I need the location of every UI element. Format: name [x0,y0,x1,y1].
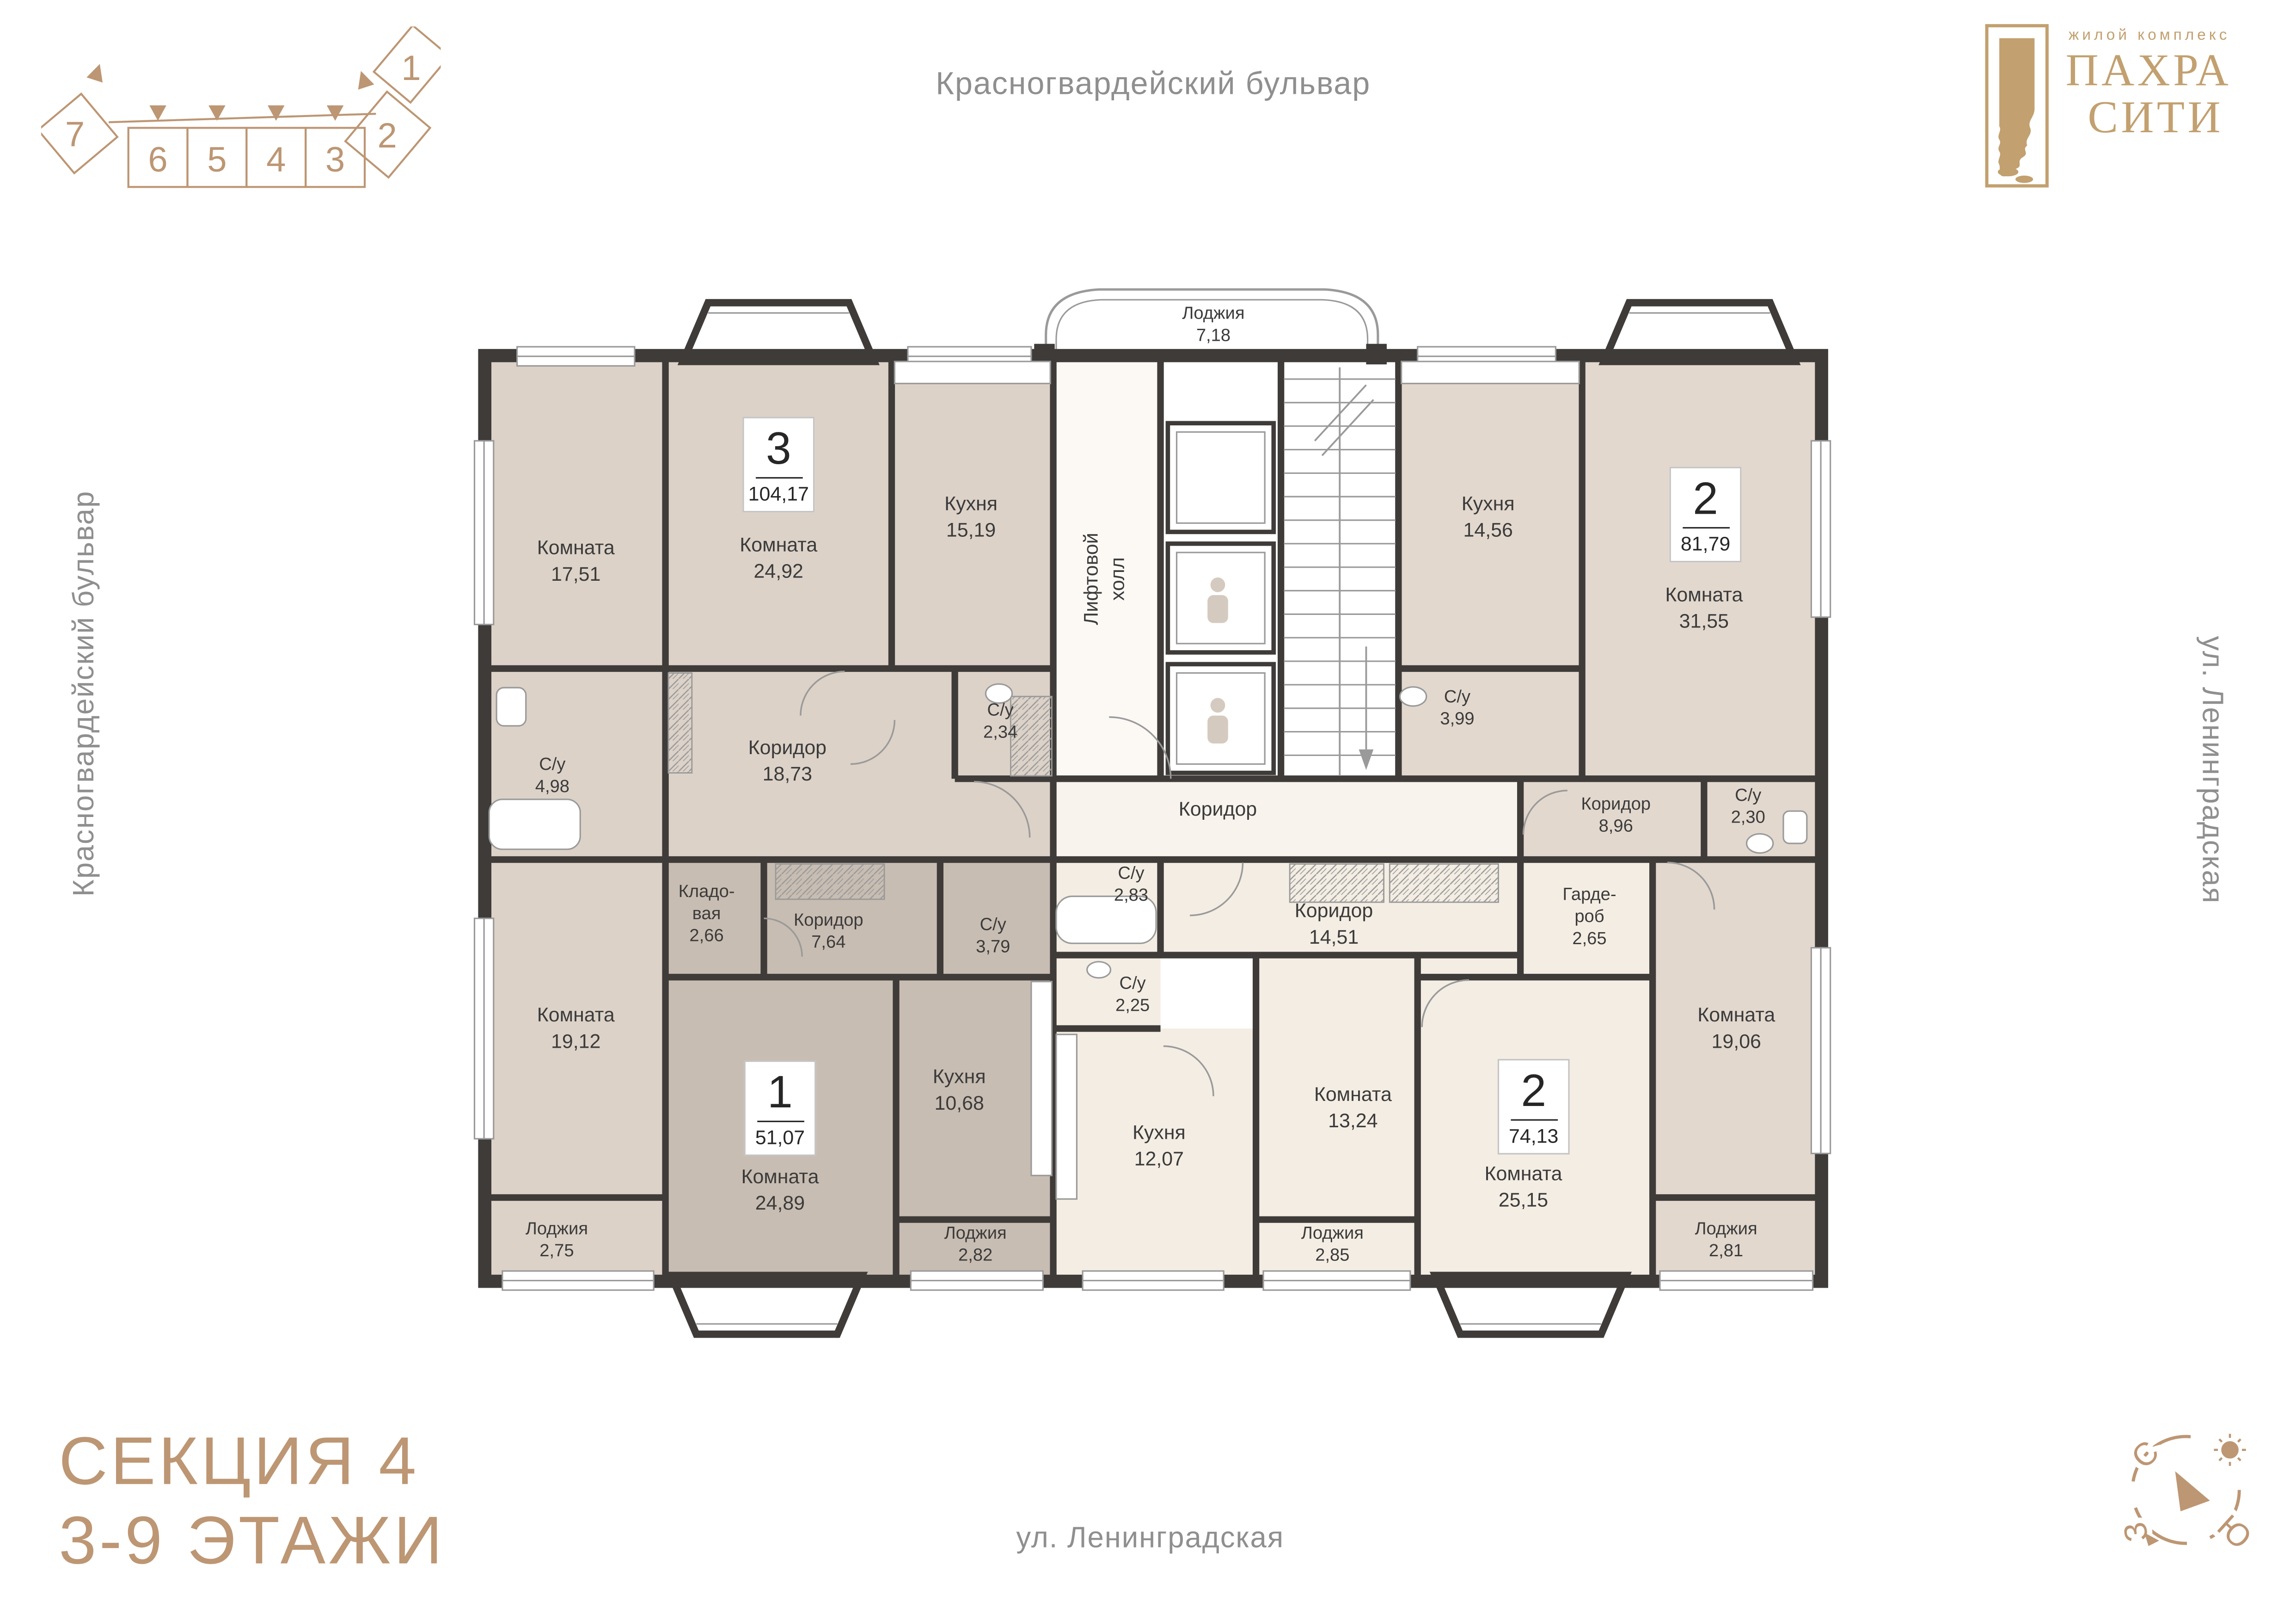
apartment-area: 74,13 [1499,1124,1568,1147]
compass-icon: С З Ю [2112,1416,2259,1563]
floor-plan-drawing [0,0,2296,1622]
apartment-badge-apt_81[interactable]: 281,79 [1670,467,1742,562]
apartment-rooms-count: 2 [1499,1068,1568,1114]
compass-sun-icon [2214,1434,2246,1466]
apartment-rooms-count: 3 [744,426,813,472]
apartment-area: 51,07 [746,1126,814,1148]
badge-divider [755,477,802,478]
apartment-rooms-count: 2 [1671,476,1740,522]
compass-south: Ю [2210,1507,2259,1556]
apartment-area: 81,79 [1671,532,1740,554]
compass-arrow [2175,1471,2210,1511]
badge-divider [1682,527,1729,528]
floor-plan-page: Красногвардейский бульвар 7 6 5 4 3 [0,0,2296,1622]
apartment-area: 104,17 [744,482,813,504]
loggia-pillar-right [1366,344,1386,364]
apartment-badge-apt_74[interactable]: 274,13 [1498,1059,1570,1154]
street-label-bottom: ул. Ленинградская [1016,1522,1284,1556]
apartment-badge-apt_51[interactable]: 151,07 [744,1060,816,1155]
badge-divider [1510,1118,1557,1120]
section-title-line1: СЕКЦИЯ 4 [59,1422,445,1501]
apartment-badge-apt_104[interactable]: 3104,17 [742,417,814,512]
loggia-top-glazing [1046,289,1378,358]
badge-divider [757,1120,804,1122]
section-title: СЕКЦИЯ 4 3-9 ЭТАЖИ [59,1422,445,1580]
section-title-line2: 3-9 ЭТАЖИ [59,1501,445,1580]
compass-north: С [2124,1433,2166,1475]
apartment-rooms-count: 1 [746,1069,814,1116]
